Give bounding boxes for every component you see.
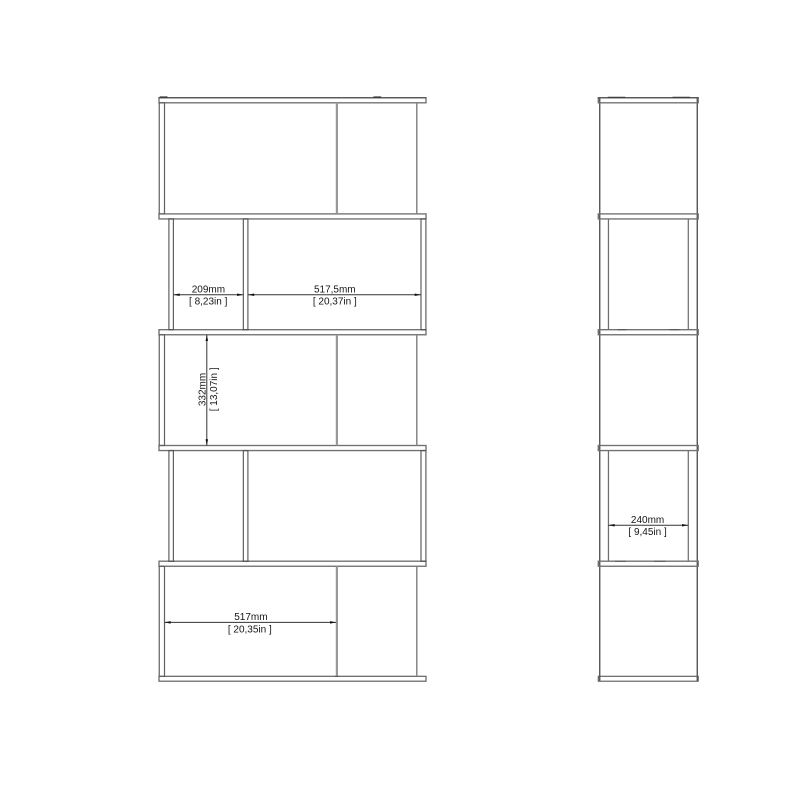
svg-text:332mm: 332mm (197, 373, 208, 406)
svg-text:517,5mm: 517,5mm (314, 284, 356, 295)
svg-text:517mm: 517mm (234, 612, 267, 623)
svg-text:[ 9,45in ]: [ 9,45in ] (628, 527, 667, 538)
svg-text:[ 20,37in ]: [ 20,37in ] (313, 297, 357, 308)
svg-text:[ 20,35in ]: [ 20,35in ] (228, 625, 272, 636)
svg-text:209mm: 209mm (192, 284, 225, 295)
svg-text:[ 8,23in ]: [ 8,23in ] (189, 297, 228, 308)
svg-text:[ 13,07in ]: [ 13,07in ] (209, 367, 220, 411)
svg-text:240mm: 240mm (631, 515, 664, 526)
